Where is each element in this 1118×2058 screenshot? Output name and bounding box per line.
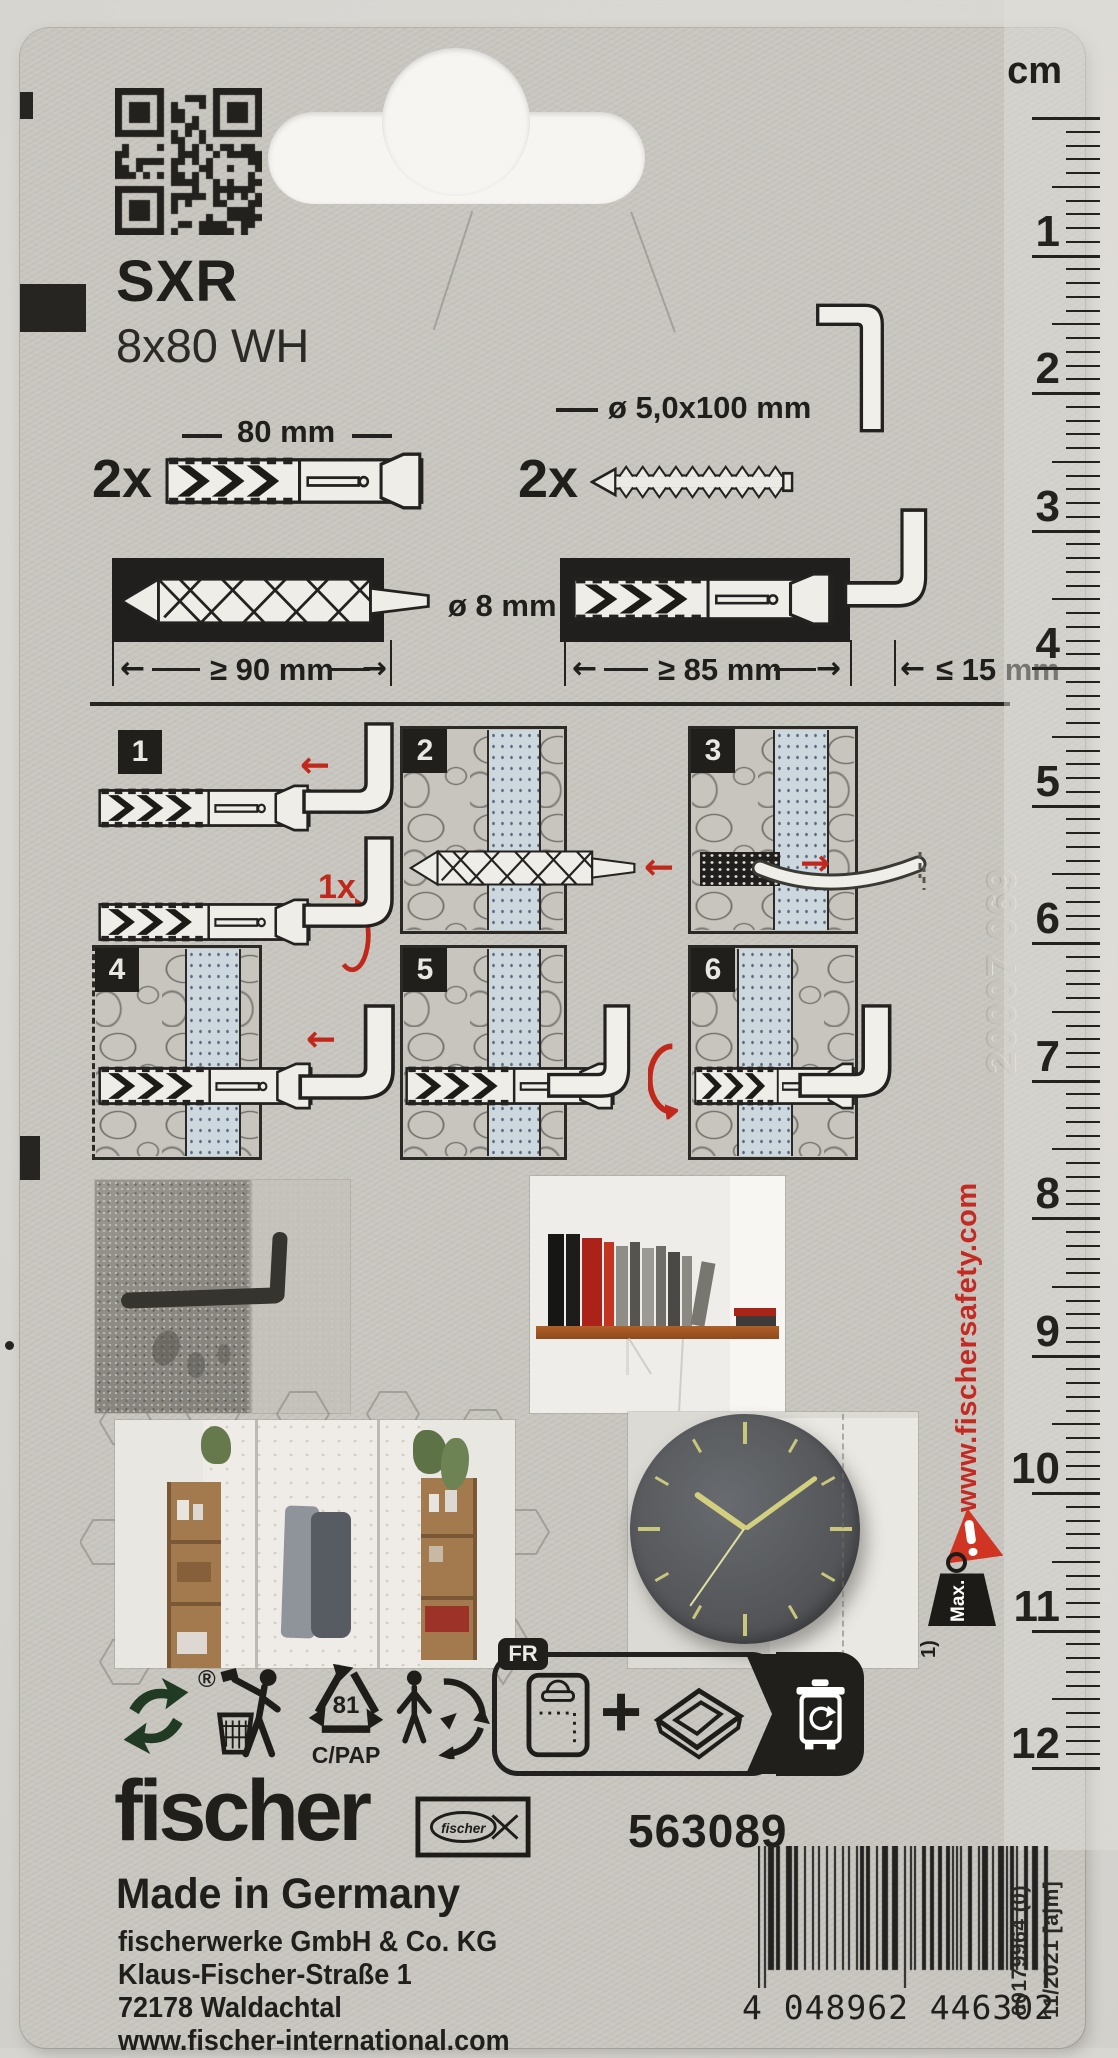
application-photo-bookshelf: [530, 1176, 785, 1413]
step-number: 4: [95, 948, 139, 992]
book: [691, 1261, 716, 1326]
barcode-bars: [758, 1846, 1050, 1988]
clock-minute-hand: [744, 1475, 818, 1531]
book: [566, 1234, 580, 1326]
installed-hook-bend: [269, 1232, 288, 1303]
hook-screw-drawing: [590, 458, 795, 506]
safety-website-vertical: www.fischersafety.com: [951, 1042, 984, 1512]
hook-out-of-wall: [842, 508, 942, 612]
product-series: SXR: [116, 248, 238, 315]
drill-bit-drawing: [118, 572, 436, 630]
hanging-towel: [311, 1512, 351, 1638]
step1-hook2: [300, 836, 410, 932]
step2-drill: [408, 846, 640, 890]
step5-rotation: [648, 1038, 678, 1122]
angle-hook-drawing: [812, 300, 888, 436]
wall-plug-drawing: [165, 452, 430, 510]
address-block: fischerwerke GmbH & Co. KG Klaus-Fischer…: [118, 1926, 539, 2058]
brand-wordmark: fischer: [114, 1768, 368, 1854]
ruler-scale: cm 123456789101112: [1000, 0, 1118, 1900]
plus-sign: +: [600, 1676, 642, 1748]
red-arrow-left: ←: [300, 748, 330, 784]
print-mark: [20, 1136, 40, 1180]
book: [656, 1246, 666, 1326]
euro-hang-hole-arch: [382, 48, 530, 196]
dim-85-15: ← ≥ 85 mm → ← ≤ 15 mm: [560, 640, 1040, 690]
fish-emblem: [415, 1796, 531, 1858]
product-size: 8x80 WH: [116, 318, 309, 373]
section-divider: [90, 702, 1010, 706]
print-mark: [20, 92, 33, 119]
book: [642, 1248, 654, 1326]
step5-hook: [545, 1004, 645, 1102]
step1-plug: [98, 784, 316, 832]
street: Klaus-Fischer-Straße 1: [118, 1959, 510, 1992]
backing-card-icon: [526, 1672, 590, 1758]
arrow-left: ←: [120, 654, 145, 684]
step1-plug2: [98, 898, 316, 946]
dim-dash: [556, 408, 598, 412]
step4-plug: [98, 1062, 318, 1110]
red-arrow-left: ←: [644, 850, 674, 886]
plug-length-label: 80 mm: [237, 414, 335, 450]
step6-hook: [796, 1004, 908, 1102]
book: [548, 1234, 564, 1326]
wood-shelf-right: [421, 1478, 477, 1660]
red-arrow-left: ←: [306, 1022, 336, 1058]
arrow-right: →: [816, 654, 841, 684]
book: [682, 1256, 692, 1326]
ruler-unit: cm: [1007, 50, 1062, 93]
plug-qty: 2x: [92, 448, 152, 510]
print-mark: [5, 1341, 14, 1350]
dim-dash: [352, 434, 392, 438]
wood-shelf-left: [167, 1482, 221, 1668]
company-name: fischerwerke GmbH & Co. KG: [118, 1926, 510, 1959]
blister-tray-icon: [652, 1682, 746, 1762]
plant: [201, 1426, 231, 1464]
installed-hook: [121, 1287, 283, 1309]
clock-second-hand: [689, 1528, 745, 1606]
anchor-depth-label: ≥ 85 mm: [658, 652, 782, 688]
drill-diameter-label: ø 8 mm: [448, 588, 557, 624]
blister-crease: [842, 1414, 844, 1666]
screw-dim-label: ø 5,0x100 mm: [608, 390, 811, 426]
book: [616, 1246, 628, 1326]
recycle-bin-icon: [794, 1670, 848, 1758]
step-number: 3: [691, 729, 735, 773]
dim-dash: [182, 434, 222, 438]
date-code-vertical: 11/2021 [ajm]: [1040, 1860, 1064, 2018]
hole-depth-label: ≥ 90 mm: [210, 652, 334, 688]
step3-blow-tube: [752, 850, 932, 910]
step-number: 2: [403, 729, 447, 773]
book-stack: [736, 1316, 776, 1326]
clock-face: [630, 1414, 860, 1644]
print-mark: [20, 284, 86, 332]
step-number: 1: [118, 730, 162, 774]
triman-icon: [394, 1664, 490, 1762]
city: 72178 Waldachtal: [118, 1992, 510, 2025]
tidyman-icon: [214, 1664, 298, 1762]
arrow-left: ←: [572, 654, 597, 684]
application-photo-bathroom: [115, 1420, 515, 1668]
arrow-left: ←: [900, 654, 925, 684]
step-number: 6: [691, 948, 735, 992]
company-website: www.fischer-international.com: [118, 2025, 510, 2058]
green-dot-icon: [116, 1676, 196, 1756]
step-number: 5: [403, 948, 447, 992]
screw-qty: 2x: [518, 448, 578, 510]
clock-hour-hand: [693, 1491, 747, 1531]
book: [630, 1242, 640, 1326]
shelf-bracket: [626, 1339, 629, 1375]
packaging-photo: { "product": { "series": "SXR", "size": …: [0, 0, 1118, 2048]
shelf-bracket: [628, 1338, 652, 1375]
dim-90: ← ≥ 90 mm →: [112, 640, 402, 690]
print-ref-vertical: 00179964 (0): [1008, 1858, 1032, 2016]
application-photo-concrete-hook: [95, 1180, 350, 1413]
qr-code: [115, 88, 262, 235]
plug-in-hole-drawing: [572, 572, 840, 626]
shelf-board: [536, 1326, 779, 1339]
made-in-label: Made in Germany: [116, 1870, 460, 1919]
max-label: Max.: [948, 1570, 970, 1622]
country-tag: FR: [498, 1638, 548, 1670]
footnote-marker: 1): [918, 1618, 941, 1658]
arrow-right: →: [362, 654, 387, 684]
book: [604, 1242, 614, 1326]
book: [668, 1252, 680, 1326]
book-stack: [734, 1308, 776, 1316]
resin-code: 81: [300, 1692, 392, 1720]
book: [582, 1238, 602, 1326]
